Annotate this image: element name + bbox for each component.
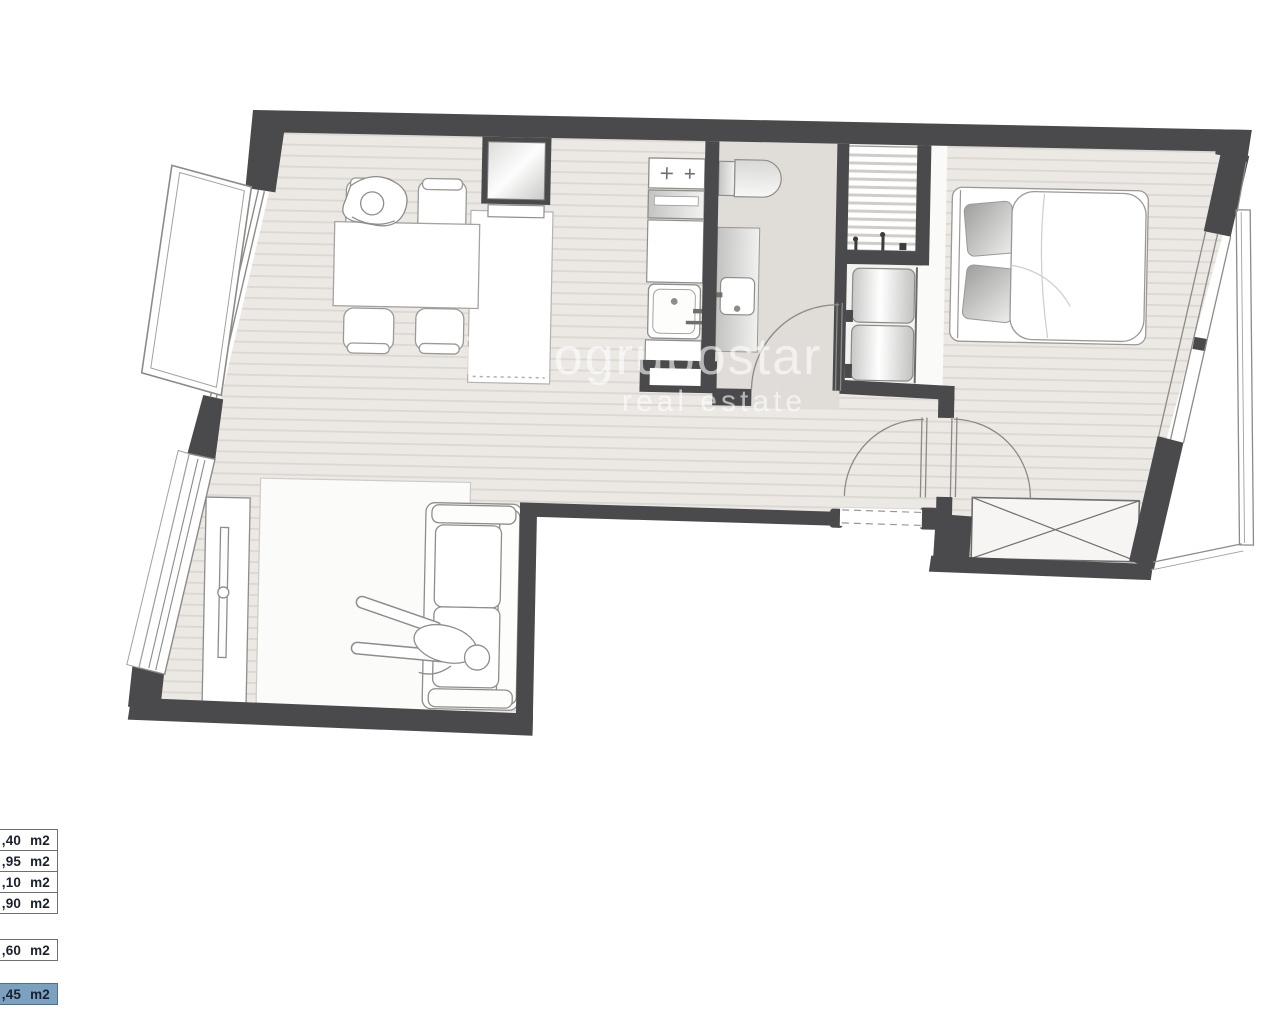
floor-plan-page: inmogrupostar real estate ,40 m2 ,95 m2 … bbox=[0, 0, 1280, 1024]
toilet bbox=[718, 159, 781, 197]
legend-item: ,60 m2 bbox=[0, 939, 58, 961]
bedroom-wall-below-door bbox=[936, 497, 952, 520]
tall-cabinet bbox=[468, 210, 553, 384]
legend-item-highlighted: ,45 m2 bbox=[0, 983, 58, 1005]
bathroom-doorway-floor bbox=[749, 380, 840, 410]
built-in-wardrobe bbox=[971, 497, 1139, 561]
entrance-jamb-right bbox=[920, 507, 938, 529]
fridge bbox=[481, 137, 552, 218]
legend-item: ,95 m2 bbox=[0, 850, 58, 872]
sofa bbox=[422, 503, 522, 711]
utility-right-wall bbox=[915, 145, 931, 265]
duvet bbox=[1010, 191, 1147, 342]
kitchen-counter bbox=[647, 220, 704, 283]
kitchen-sink bbox=[648, 284, 705, 339]
dining-table bbox=[333, 222, 480, 309]
legend-item: ,10 m2 bbox=[0, 871, 58, 893]
bedroom-wall-above-door bbox=[938, 386, 955, 418]
legend-item: ,90 m2 bbox=[0, 892, 58, 914]
oven bbox=[648, 190, 705, 219]
bathroom-door-jamb-wall bbox=[712, 388, 751, 406]
pillow bbox=[962, 264, 1017, 323]
double-bed bbox=[950, 187, 1149, 345]
pillow bbox=[964, 201, 1016, 257]
cooktop bbox=[649, 158, 706, 189]
floor-plan-svg bbox=[0, 0, 1280, 1024]
washbasin-vanity bbox=[711, 227, 759, 352]
tv-sideboard bbox=[202, 497, 250, 708]
wardrobe-step-wall bbox=[933, 514, 972, 561]
legend-item: ,40 m2 bbox=[0, 829, 58, 851]
